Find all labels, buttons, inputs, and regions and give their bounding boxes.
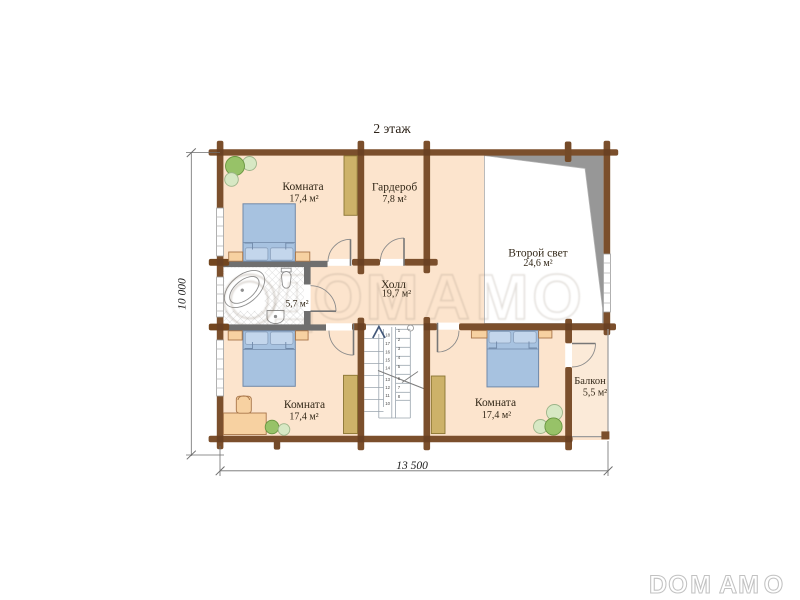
- svg-text:О: О: [532, 261, 582, 333]
- svg-text:A: A: [719, 571, 737, 599]
- svg-text:10: 10: [385, 401, 390, 406]
- svg-text:5,5 м²: 5,5 м²: [583, 388, 607, 399]
- svg-text:М: М: [475, 261, 528, 333]
- svg-text:12: 12: [385, 385, 390, 390]
- svg-text:Балкон: Балкон: [574, 376, 606, 387]
- svg-text:M: M: [738, 571, 759, 599]
- svg-text:А: А: [424, 261, 470, 333]
- svg-text:5,7 м²: 5,7 м²: [285, 300, 308, 310]
- svg-text:Комната: Комната: [282, 181, 323, 193]
- svg-text:Гардероб: Гардероб: [372, 182, 418, 194]
- svg-text:7,8 м²: 7,8 м²: [382, 194, 406, 205]
- svg-text:Комната: Комната: [284, 399, 325, 411]
- svg-text:17,4 м²: 17,4 м²: [289, 194, 318, 205]
- svg-text:Комната: Комната: [475, 397, 516, 409]
- svg-text:О: О: [313, 261, 363, 333]
- svg-text:13: 13: [385, 377, 390, 382]
- svg-text:10 000: 10 000: [177, 278, 189, 310]
- svg-text:16: 16: [385, 350, 390, 355]
- svg-text:D: D: [649, 571, 667, 599]
- svg-text:18: 18: [385, 333, 390, 338]
- svg-text:O: O: [764, 571, 783, 599]
- svg-text:17,4 м²: 17,4 м²: [289, 412, 318, 423]
- svg-text:11: 11: [385, 393, 390, 398]
- svg-text:17,4 м²: 17,4 м²: [482, 410, 511, 421]
- svg-text:15: 15: [385, 358, 390, 363]
- svg-text:M: M: [690, 571, 711, 599]
- svg-text:14: 14: [385, 366, 390, 371]
- svg-text:O: O: [668, 571, 687, 599]
- svg-text:24,6 м²: 24,6 м²: [523, 258, 552, 269]
- svg-text:13 500: 13 500: [396, 460, 428, 472]
- svg-text:19,7 м²: 19,7 м²: [382, 288, 411, 299]
- svg-text:17: 17: [385, 341, 390, 346]
- svg-text:2 этаж: 2 этаж: [373, 121, 411, 136]
